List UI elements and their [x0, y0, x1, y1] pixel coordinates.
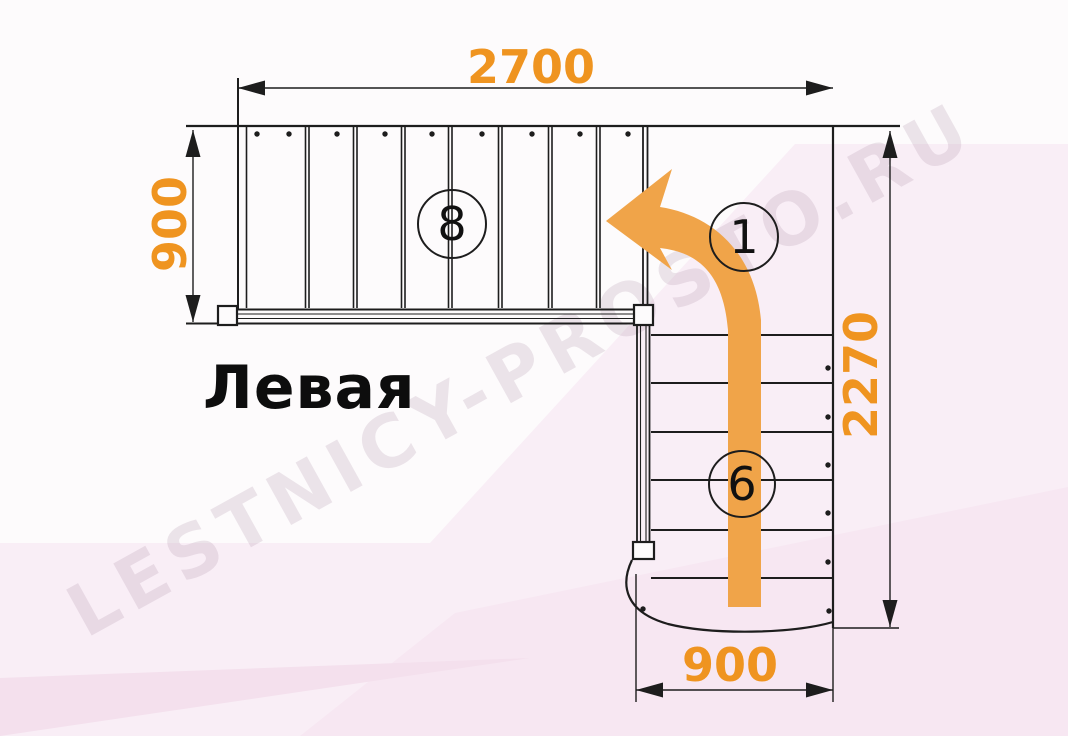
upper-flight-step-count-badge: 8	[417, 189, 487, 259]
dim-arrow-left-top	[186, 130, 201, 157]
dim-arrow-bottom-right	[806, 683, 833, 698]
newel-post-left	[218, 306, 237, 325]
turn-start-number: 1	[729, 210, 758, 264]
handrail-inner-lines	[237, 314, 634, 319]
dimension-top: 2700	[467, 44, 595, 90]
dim-arrow-top-left	[238, 81, 265, 96]
stair-drawing	[0, 0, 1068, 736]
dim-arrow-top-right	[806, 81, 833, 96]
page-title: Левая	[203, 358, 416, 418]
newel-post-bottom	[633, 542, 654, 559]
lower-handrail-lines	[637, 325, 650, 543]
lower-flight-step-count: 6	[727, 457, 756, 511]
dim-arrow-bottom-left	[636, 683, 663, 698]
baluster-dots-upper	[254, 131, 630, 136]
lower-handrail-inner-lines	[641, 325, 647, 543]
newel-post-corner	[634, 305, 653, 325]
dimension-left: 900	[147, 176, 193, 272]
dimension-bottom: 900	[682, 642, 778, 688]
upper-handrail	[186, 305, 654, 325]
dim-arrow-left-bottom	[186, 295, 201, 322]
turn-start-badge: 1	[709, 202, 779, 272]
dim-arrow-right-bottom	[883, 600, 898, 627]
dimension-right: 2270	[838, 311, 884, 439]
dim-arrow-right-top	[883, 131, 898, 158]
upper-flight	[186, 78, 900, 310]
lower-flight-step-count-badge: 6	[708, 450, 776, 518]
stair-plan-diagram: LESTNICY-PROSTO.RU	[0, 0, 1068, 736]
upper-flight-step-count: 8	[437, 197, 466, 251]
